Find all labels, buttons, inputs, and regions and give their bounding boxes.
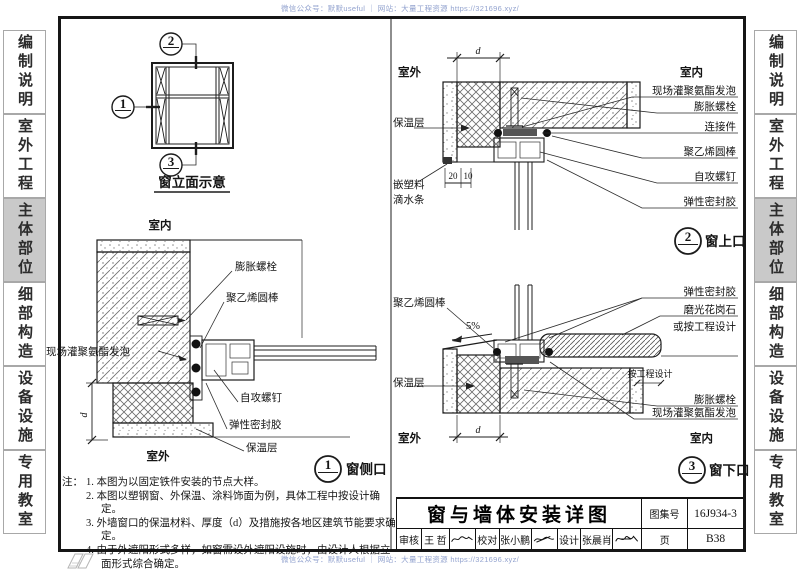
svg-text:10: 10 <box>464 171 474 181</box>
granite-sill-board <box>540 334 661 357</box>
svg-text:2: 2 <box>685 229 692 244</box>
label-rod: 聚乙烯圆棒 <box>684 145 737 158</box>
room-in-label: 室内 <box>149 218 172 232</box>
room-out-label: 室外 <box>398 65 421 79</box>
slope-arrow: 5% <box>452 321 492 343</box>
detail-sill: 5% d 按工程设计 聚乙烯圆棒 保温层 <box>393 285 750 483</box>
label-screw: 自攻螺钉 <box>694 170 736 183</box>
elevation-title: 窗立面示意 <box>158 174 226 190</box>
review-label: 审核 <box>397 529 421 549</box>
label-sealant: 弹性密封胶 <box>684 285 737 298</box>
callout-detail-3: 3 窗下口 <box>679 457 750 483</box>
backer-rod-dot <box>192 364 201 373</box>
label-sealant: 弹性密封胶 <box>229 418 282 431</box>
label-foam: 现场灌聚氨酯发泡 <box>652 406 736 419</box>
designer-name: 张晨肖 <box>580 529 612 549</box>
label-anchor: 膨胀螺栓 <box>694 100 736 113</box>
room-out-label: 室外 <box>398 431 421 445</box>
label-by-design: 按工程设计 <box>627 368 672 379</box>
glazing-lines <box>254 346 376 360</box>
callout-1-bubble: 1 <box>112 96 148 118</box>
glazing-lines <box>515 285 532 340</box>
callout-2-bubble: 2 <box>160 33 196 57</box>
atlas-number-label: 图集号 <box>641 499 687 528</box>
dim-d-side: d <box>79 379 108 444</box>
backer-rod-dot <box>545 348 553 356</box>
page-label: 页 <box>641 529 687 549</box>
designer-signature <box>612 529 641 549</box>
svg-text:d: d <box>476 46 482 57</box>
glazing-lines <box>515 162 532 230</box>
detail-3-name: 窗下口 <box>709 462 750 478</box>
detail-head: 室外 室内 d <box>393 46 746 254</box>
callout-detail-2: 2 窗上口 <box>675 228 746 254</box>
note-item: 1. 本图为以固定铁件安装的节点大样。 <box>86 476 398 490</box>
note-item: 3. 外墙窗口的保温材料、厚度（d）及措施按各地区建筑节能要求确定。 <box>86 517 398 544</box>
label-insulation: 保温层 <box>246 441 278 454</box>
label-anchor: 膨胀螺栓 <box>694 393 736 406</box>
svg-text:2: 2 <box>168 33 175 48</box>
drawing-title: 窗与墙体安装详图 <box>397 499 641 528</box>
callout-3-bubble: 3 <box>160 154 196 176</box>
proof-label: 校对 <box>475 529 499 549</box>
room-in-label: 室内 <box>690 431 713 445</box>
label-drip-2: 滴水条 <box>393 193 425 206</box>
label-insulation: 保温层 <box>393 116 425 129</box>
backer-rod-dot <box>494 129 502 137</box>
dim-20-10: 20 10 <box>445 168 473 188</box>
reviewer-signature <box>449 529 475 549</box>
svg-text:3: 3 <box>168 154 175 169</box>
title-block: 窗与墙体安装详图 图集号 16J934-3 审核 王 哲 校对 张小鹏 设计 张… <box>396 497 743 549</box>
dim-d-sill: d <box>449 415 508 443</box>
casement-symbols <box>157 68 228 143</box>
detail-1-name: 窗侧口 <box>346 461 387 477</box>
drip-strip <box>443 157 452 164</box>
label-connector: 连接件 <box>705 120 737 133</box>
detail-jamb: 室内 <box>46 218 387 482</box>
label-foam: 现场灌聚氨酯发泡 <box>46 345 130 358</box>
label-drip-1: 嵌塑料 <box>393 178 425 191</box>
svg-text:1: 1 <box>325 457 332 472</box>
backer-rod-dot <box>192 340 201 349</box>
backer-rod-dot <box>192 388 201 397</box>
label-insulation: 保温层 <box>393 376 425 389</box>
svg-text:20: 20 <box>449 171 459 181</box>
room-out-label: 室外 <box>147 449 170 463</box>
label-rod: 聚乙烯圆棒 <box>393 296 446 309</box>
title-block-row-1: 窗与墙体安装详图 图集号 16J934-3 <box>397 499 743 528</box>
note-item: 2. 本图以塑钢窗、外保温、涂料饰面为例，具体工程中按设计确定。 <box>86 490 398 517</box>
svg-text:1: 1 <box>120 96 127 111</box>
reviewer-name: 王 哲 <box>421 529 449 549</box>
atlas-number-value: 16J934-3 <box>687 499 743 528</box>
watermark-bottom: 微信公众号：默默useful ｜ 网站：大量工程资源 https://32169… <box>281 554 519 565</box>
svg-text:d: d <box>476 425 482 436</box>
proofer-name: 张小鹏 <box>499 529 531 549</box>
svg-text:3: 3 <box>689 458 696 473</box>
window-frame-profile <box>494 138 544 162</box>
label-granite: 磨光花岗石 <box>684 303 737 316</box>
corner-logo <box>60 551 104 571</box>
svg-text:d: d <box>79 412 90 418</box>
dim-d-head: d <box>447 46 510 82</box>
room-in-label: 室内 <box>680 65 703 79</box>
label-screw: 自攻螺钉 <box>240 391 282 404</box>
label-granite-2: 或按工程设计 <box>673 320 736 333</box>
title-block-row-2: 审核 王 哲 校对 张小鹏 设计 张晨肖 页 B38 <box>397 528 743 549</box>
connector-plate <box>503 129 537 136</box>
detail-2-name: 窗上口 <box>705 233 746 249</box>
window-frame-profile <box>202 340 254 380</box>
label-rod: 聚乙烯圆棒 <box>226 291 279 304</box>
label-foam: 现场灌聚氨酯发泡 <box>652 84 736 97</box>
window-elevation: 2 1 3 窗立面示意 <box>112 33 233 192</box>
atlas-page: 微信公众号：默默useful ｜ 网站：大量工程资源 https://32169… <box>0 0 800 571</box>
design-label: 设计 <box>557 529 581 549</box>
page-number: B38 <box>687 529 743 549</box>
connector-plate <box>505 356 539 364</box>
proofer-signature <box>531 529 557 549</box>
label-sealant: 弹性密封胶 <box>684 195 737 208</box>
label-anchor: 膨胀螺栓 <box>235 260 277 273</box>
